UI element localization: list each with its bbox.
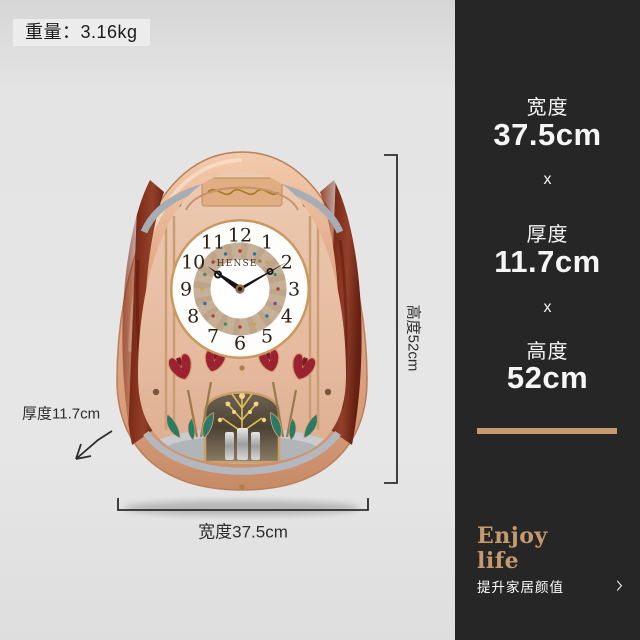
tagline-english: Enjoy life xyxy=(477,524,548,573)
footer-link[interactable]: 提升家居颜值 › xyxy=(477,575,624,596)
spec-panel: 宽度 37.5cm x 厚度 11.7cm x 高度 52cm Enjoy li… xyxy=(455,0,640,640)
tagline-chinese: 提升家居颜值 xyxy=(477,576,564,596)
tagline-en-line1: Enjoy xyxy=(477,524,548,549)
case-button xyxy=(239,365,244,370)
spec-width-label: 宽度 xyxy=(455,91,640,120)
svg-text:3: 3 xyxy=(288,279,300,301)
svg-text:1: 1 xyxy=(261,232,273,254)
chevron-right-icon[interactable]: › xyxy=(616,572,624,598)
svg-text:4: 4 xyxy=(281,306,293,328)
weight-badge: 重量：3.16kg xyxy=(13,19,150,46)
svg-text:6: 6 xyxy=(234,333,246,355)
svg-text:8: 8 xyxy=(187,306,199,328)
spec-depth-label: 厚度 xyxy=(455,218,640,247)
depth-dimension-label: 厚度11.7cm xyxy=(22,403,100,424)
svg-text:5: 5 xyxy=(261,325,273,347)
width-dimension-label: 宽度37.5cm xyxy=(198,518,288,543)
product-image-clock: 12 1 2 3 4 5 6 7 8 9 10 11 HENSE® xyxy=(90,140,400,520)
svg-text:9: 9 xyxy=(180,279,192,301)
pendulum-window xyxy=(205,393,279,463)
spec-times-1: x xyxy=(455,171,640,189)
product-card: 重量：3.16kg xyxy=(0,0,640,640)
svg-text:2: 2 xyxy=(281,252,293,274)
spec-width-value: 37.5cm xyxy=(455,117,640,153)
spec-times-2: x xyxy=(455,299,640,317)
svg-text:10: 10 xyxy=(181,252,205,274)
spec-depth-value: 11.7cm xyxy=(455,244,640,280)
svg-text:12: 12 xyxy=(228,225,252,247)
clock-shadow xyxy=(124,501,360,516)
svg-text:11: 11 xyxy=(201,232,225,254)
chimes xyxy=(225,428,260,460)
height-dimension-label: 高度52cm xyxy=(404,305,425,372)
clock-dial: 12 1 2 3 4 5 6 7 8 9 10 11 HENSE® xyxy=(170,219,310,359)
case-bottom-screw xyxy=(239,484,244,489)
gold-divider xyxy=(477,428,617,434)
tagline-en-line2: life xyxy=(477,549,548,574)
brand-text: HENSE® xyxy=(217,258,264,269)
spec-height-value: 52cm xyxy=(455,360,640,396)
svg-text:7: 7 xyxy=(207,325,219,347)
